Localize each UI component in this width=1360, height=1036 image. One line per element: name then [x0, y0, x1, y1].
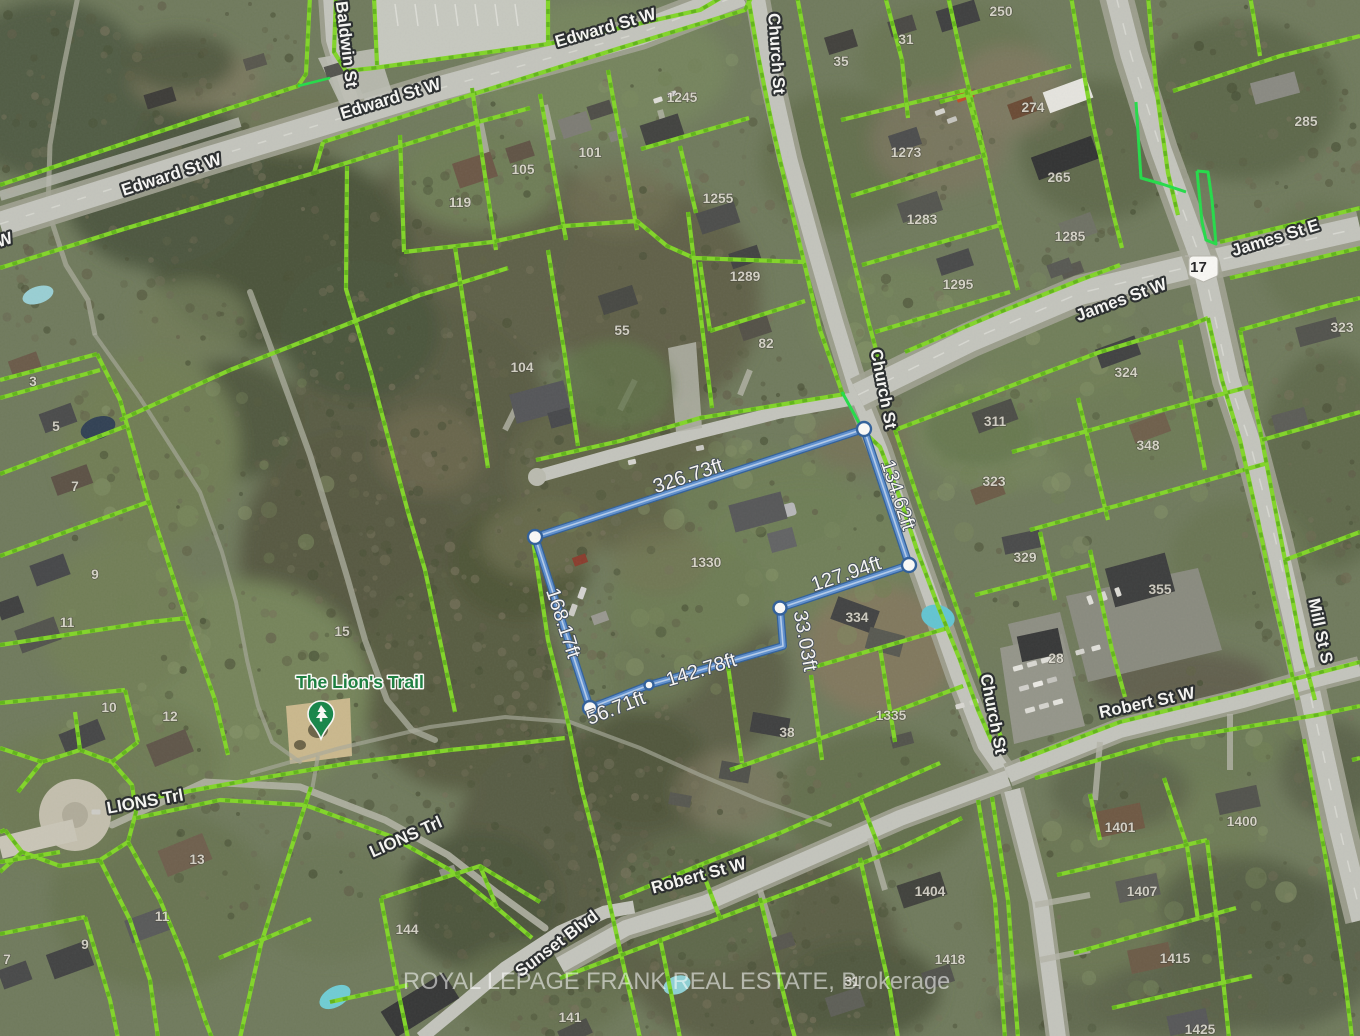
svg-text:ROYAL LEPAGE FRANK REAL ESTATE: ROYAL LEPAGE FRANK REAL ESTATE, Brokerag…	[403, 969, 950, 995]
